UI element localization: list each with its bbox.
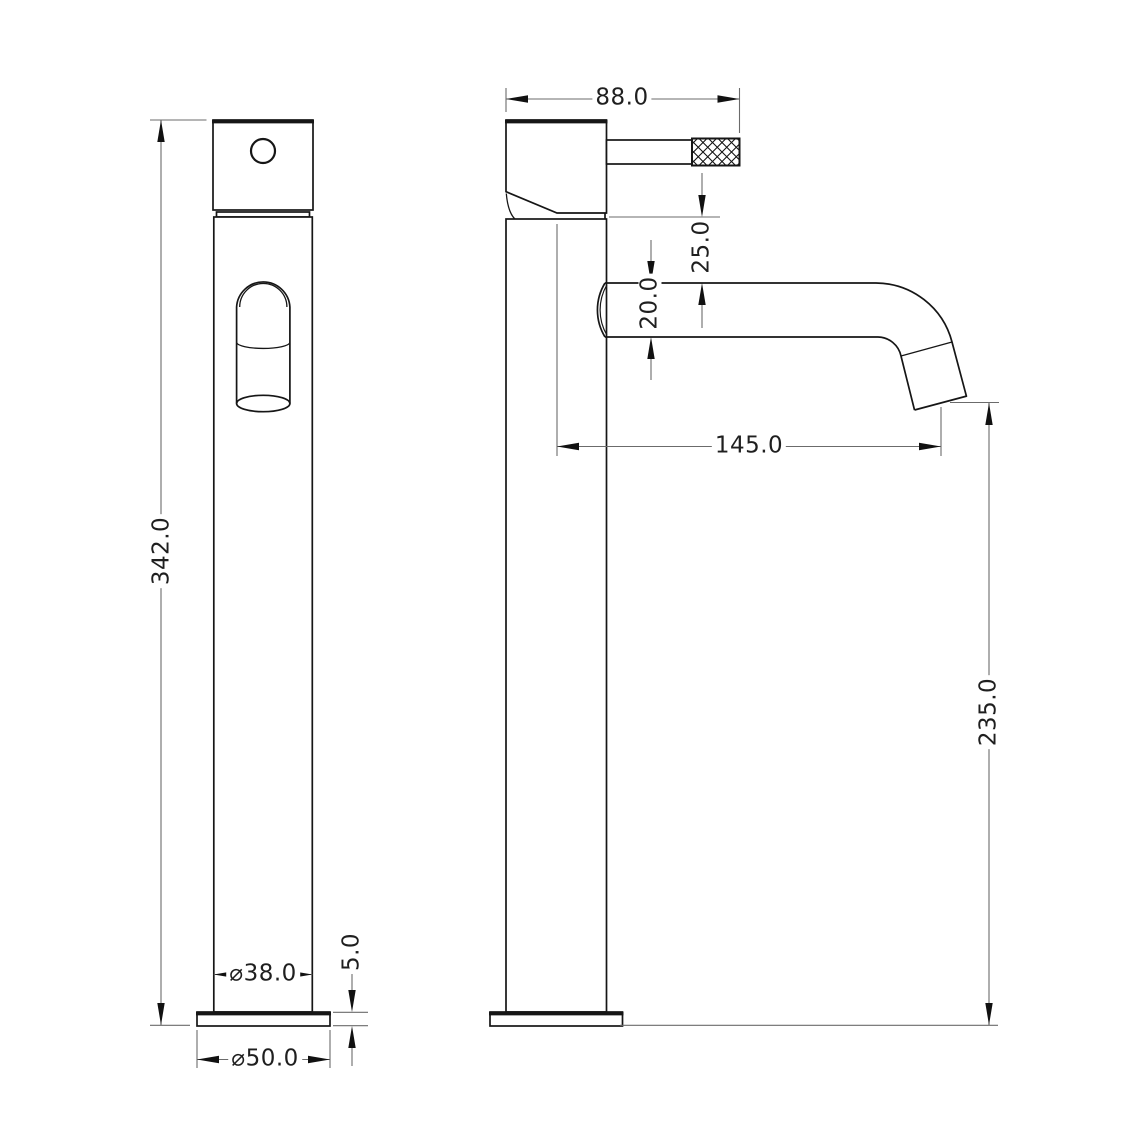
head-to-spout-label: 25.0: [691, 217, 714, 276]
dim-outlet-to-base: [620, 403, 999, 1026]
spout-diameter-label: 20.0: [639, 273, 662, 332]
arrow-up: [985, 403, 992, 425]
side-lever-arm: [607, 140, 693, 164]
side-head: [506, 120, 607, 213]
arrow-up: [348, 1026, 355, 1048]
base-diameter-label: ⌀50.0: [228, 1048, 302, 1071]
front-handle-grip-bottom: [237, 395, 290, 411]
base-height-label: 5.0: [341, 930, 364, 974]
front-head: [213, 120, 313, 210]
arrow-up: [157, 120, 164, 142]
arrow-down: [985, 1003, 992, 1025]
front-body: [214, 217, 312, 1012]
drawing-sheet: 342.0 ⌀38.0 5.0 ⌀50.0 88.0 25.0 20.0 145…: [0, 0, 1138, 1129]
dim-base-height: [333, 966, 368, 1066]
arrow-right: [919, 443, 941, 450]
spout-reach-label: 145.0: [712, 435, 786, 458]
arrow-left: [197, 1056, 219, 1063]
body-diameter-label: ⌀38.0: [226, 963, 300, 986]
arrow-up: [647, 337, 654, 359]
arrow-right: [718, 95, 740, 102]
spout-joint-line: [901, 342, 952, 356]
arrow-left: [506, 95, 528, 102]
front-view: [196, 120, 331, 1026]
arrow-up: [698, 283, 705, 305]
spout-elbow-inner: [878, 337, 915, 410]
side-lever-knurled-grip: [692, 139, 740, 166]
arrow-down: [698, 195, 705, 217]
head-width-label: 88.0: [592, 87, 651, 110]
arrow-down: [157, 1003, 164, 1025]
dim-spout-reach: [557, 224, 941, 456]
side-neck-arc: [506, 194, 515, 220]
arrow-down: [348, 990, 355, 1012]
outlet-to-base-label: 235.0: [978, 675, 1001, 749]
side-view: [489, 120, 967, 1026]
arrow-right: [308, 1056, 330, 1063]
side-body: [506, 219, 607, 1012]
overall-height-label: 342.0: [151, 514, 174, 588]
